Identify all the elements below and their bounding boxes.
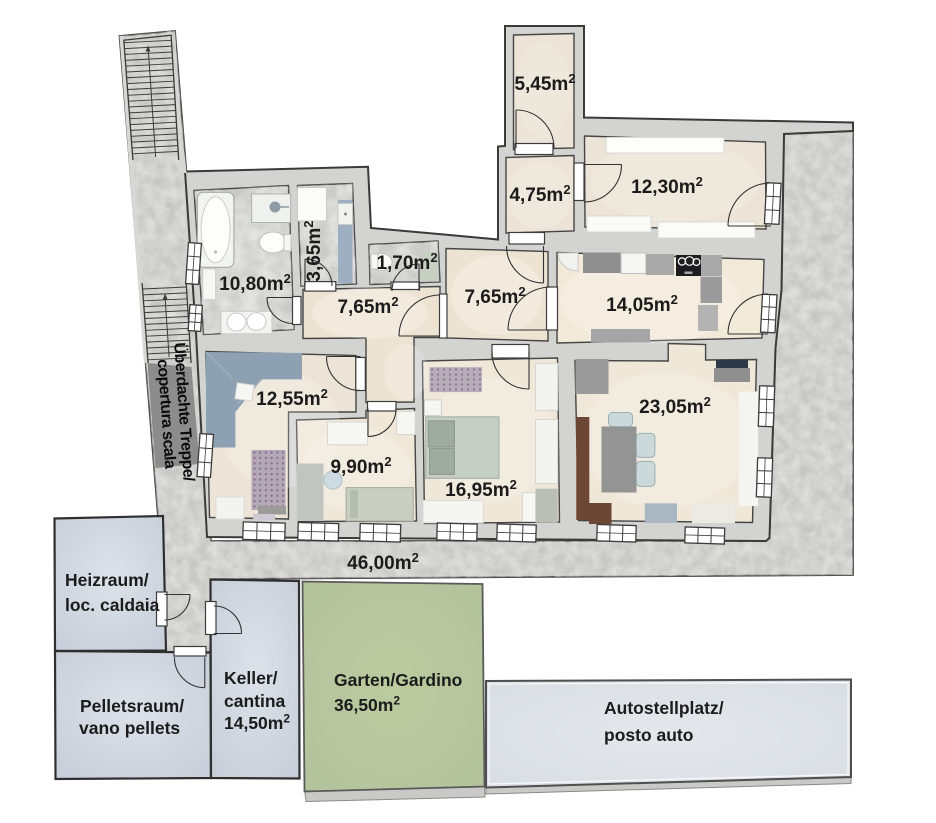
svg-text:14,50m2: 14,50m2 [224, 712, 290, 734]
svg-text:5,45m2: 5,45m2 [514, 71, 575, 95]
svg-text:Heizraum/: Heizraum/ [65, 570, 149, 590]
svg-text:36,50m2: 36,50m2 [334, 694, 400, 716]
svg-text:Keller/: Keller/ [224, 668, 278, 688]
svg-text:7,65m2: 7,65m2 [464, 284, 525, 308]
svg-text:4,75m2: 4,75m2 [509, 182, 570, 206]
svg-text:Garten/Gardino: Garten/Gardino [334, 670, 462, 690]
svg-text:3,65m2: 3,65m2 [301, 220, 325, 281]
svg-text:16,95m2: 16,95m2 [445, 477, 517, 501]
svg-text:cantina: cantina [224, 691, 286, 711]
svg-text:1,70m2: 1,70m2 [376, 250, 437, 274]
svg-text:posto auto: posto auto [604, 725, 693, 745]
svg-text:9,90m2: 9,90m2 [330, 454, 391, 478]
svg-text:12,30m2: 12,30m2 [631, 174, 703, 198]
svg-text:loc. caldaia: loc. caldaia [65, 595, 160, 615]
svg-text:10,80m2: 10,80m2 [219, 271, 291, 295]
svg-text:23,05m2: 23,05m2 [639, 394, 711, 418]
svg-text:12,55m2: 12,55m2 [256, 386, 328, 410]
svg-text:7,65m2: 7,65m2 [337, 294, 398, 318]
svg-text:Pelletsraum/: Pelletsraum/ [80, 696, 184, 716]
svg-text:14,05m2: 14,05m2 [606, 292, 678, 316]
svg-text:vano pellets: vano pellets [79, 718, 180, 738]
svg-text:46,00m2: 46,00m2 [347, 550, 419, 574]
svg-text:Autostellplatz/: Autostellplatz/ [604, 698, 724, 718]
